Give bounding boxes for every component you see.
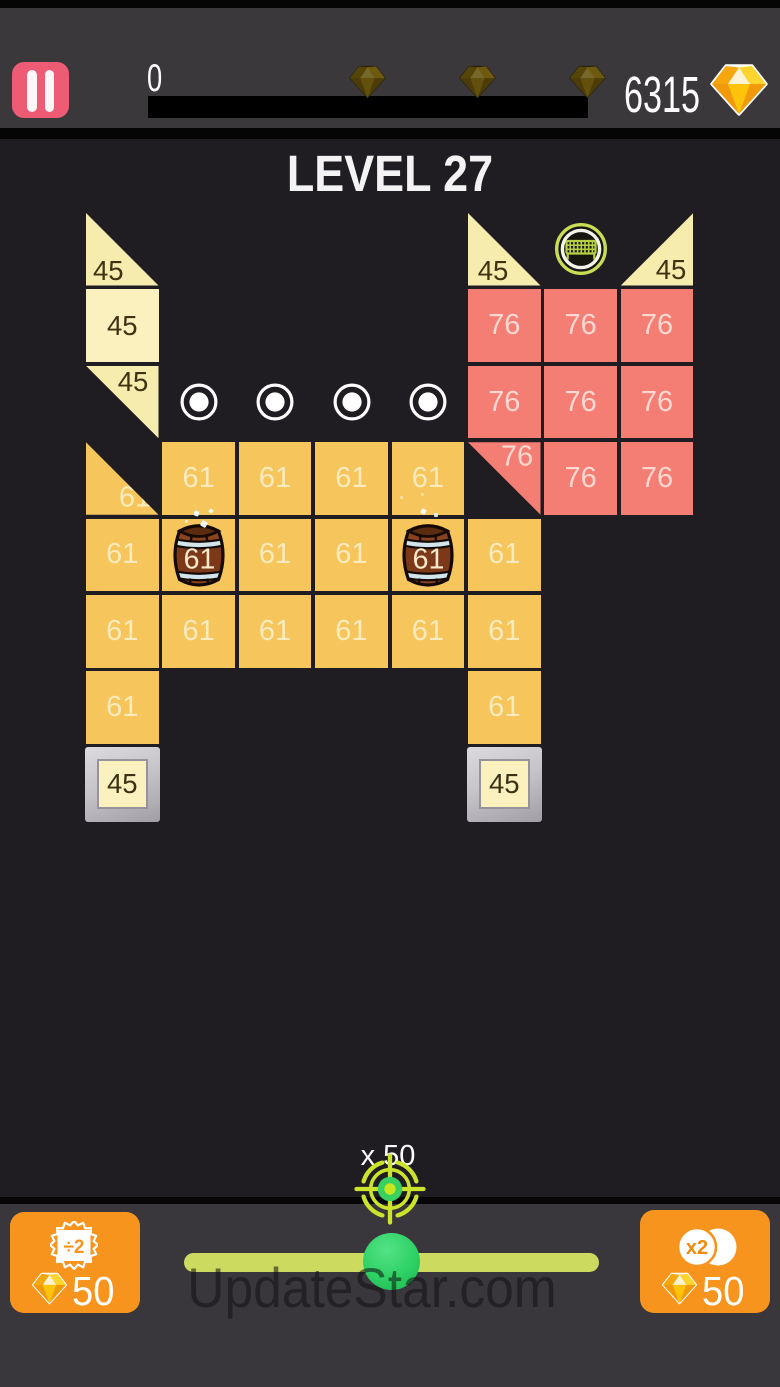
svg-text:61: 61 [413,544,445,576]
svg-text:61: 61 [183,544,215,576]
